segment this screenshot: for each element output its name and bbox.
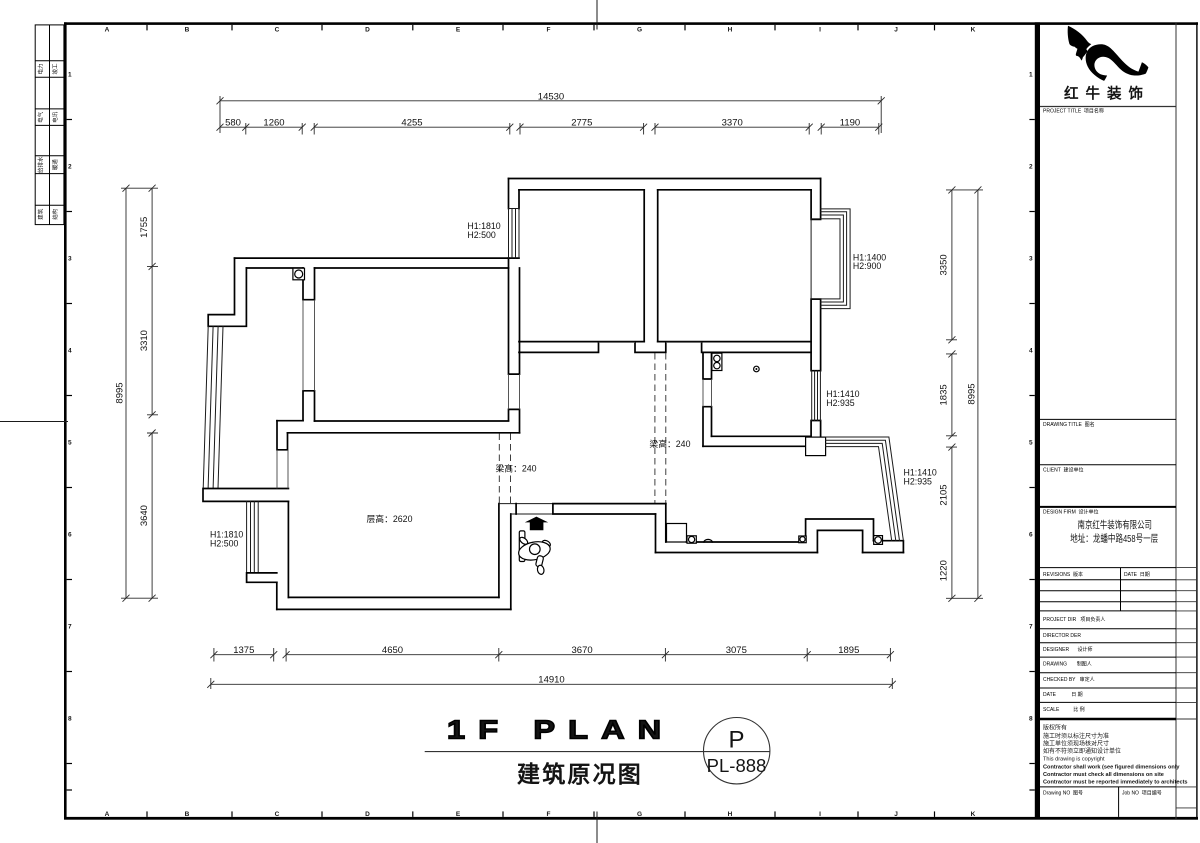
svg-text:5: 5 <box>1029 440 1033 447</box>
svg-text:F: F <box>547 811 551 818</box>
svg-text:4: 4 <box>1029 348 1033 355</box>
svg-text:3370: 3370 <box>722 117 743 128</box>
svg-text:Job NO 项目编号: Job NO 项目编号 <box>1122 790 1162 797</box>
svg-text:A: A <box>105 811 110 818</box>
svg-text:H: H <box>728 27 733 34</box>
svg-text:G: G <box>637 27 642 34</box>
svg-text:梁高：240: 梁高：240 <box>496 463 537 474</box>
svg-text:H2:500: H2:500 <box>467 230 495 240</box>
svg-text:Contractor shall work (see fig: Contractor shall work (see figured dimen… <box>1043 764 1180 770</box>
svg-text:K: K <box>971 27 976 34</box>
svg-text:Contractor must be reported im: Contractor must be reported immediately … <box>1043 780 1188 786</box>
svg-text:SCALE 比 例: SCALE 比 例 <box>1043 706 1085 713</box>
svg-text:I: I <box>819 27 821 34</box>
svg-text:8995: 8995 <box>115 382 126 403</box>
svg-text:1190: 1190 <box>840 117 860 128</box>
svg-text:1895: 1895 <box>838 645 859 656</box>
svg-text:电气: 电气 <box>37 111 45 123</box>
svg-text:C: C <box>275 27 280 34</box>
svg-text:PROJECT DIR 项目负责人: PROJECT DIR 项目负责人 <box>1043 616 1105 623</box>
svg-text:施工时须以标注尺寸为准: 施工时须以标注尺寸为准 <box>1043 732 1109 740</box>
svg-text:南京红牛装饰有限公司: 南京红牛装饰有限公司 <box>1078 518 1153 531</box>
svg-text:梁高：240: 梁高：240 <box>649 438 690 449</box>
svg-text:2: 2 <box>68 164 72 171</box>
svg-text:Drawing NO 图号: Drawing NO 图号 <box>1043 791 1083 797</box>
svg-text:H: H <box>728 811 733 818</box>
svg-text:P: P <box>728 727 744 754</box>
svg-text:CLIENT 建设单位: CLIENT 建设单位 <box>1043 466 1084 473</box>
svg-text:3: 3 <box>68 256 72 263</box>
svg-text:地址：龙蟠中路458号一层: 地址：龙蟠中路458号一层 <box>1070 532 1158 545</box>
svg-text:3: 3 <box>1029 256 1033 263</box>
svg-text:I: I <box>819 811 821 818</box>
svg-text:E: E <box>456 27 461 34</box>
svg-text:6: 6 <box>68 532 72 539</box>
svg-text:3075: 3075 <box>726 645 747 656</box>
svg-text:Contractor must check all dime: Contractor must check all dimensions on … <box>1043 772 1164 778</box>
svg-text:建筑: 建筑 <box>37 208 45 220</box>
svg-text:竣工: 竣工 <box>51 63 59 75</box>
svg-text:3640: 3640 <box>139 505 150 526</box>
svg-text:给排水: 给排水 <box>37 156 45 173</box>
svg-text:电讯: 电讯 <box>51 111 59 123</box>
svg-text:DIRECTOR DER: DIRECTOR DER <box>1043 633 1081 639</box>
svg-text:PL-888: PL-888 <box>707 755 767 776</box>
svg-text:1375: 1375 <box>233 645 254 656</box>
svg-text:8995: 8995 <box>966 383 977 404</box>
svg-text:1835: 1835 <box>939 384 950 405</box>
svg-text:F: F <box>547 27 551 34</box>
svg-text:REVISIONS 版本: REVISIONS 版本 <box>1043 571 1083 578</box>
svg-text:暖通: 暖通 <box>51 159 59 171</box>
svg-text:CHECKED BY 审定人: CHECKED BY 审定人 <box>1043 676 1095 683</box>
svg-text:层高：2620: 层高：2620 <box>367 513 413 524</box>
svg-text:8: 8 <box>1029 716 1033 723</box>
svg-text:5: 5 <box>68 440 72 447</box>
svg-text:A: A <box>105 27 110 34</box>
svg-text:C: C <box>275 811 280 818</box>
svg-text:E: E <box>456 811 461 818</box>
svg-text:H2:900: H2:900 <box>853 261 881 271</box>
svg-text:版权所有: 版权所有 <box>1043 724 1067 732</box>
svg-text:DATE 日期: DATE 日期 <box>1124 572 1150 578</box>
svg-text:580: 580 <box>225 117 241 128</box>
svg-text:2105: 2105 <box>939 484 950 505</box>
svg-text:J: J <box>894 811 898 818</box>
svg-text:14910: 14910 <box>538 675 564 686</box>
svg-text:PROJECT TITLE 项目名称: PROJECT TITLE 项目名称 <box>1043 108 1104 115</box>
svg-text:建筑原况图: 建筑原况图 <box>517 761 643 787</box>
svg-text:This drawing is copyright: This drawing is copyright <box>1043 757 1105 763</box>
svg-text:3350: 3350 <box>939 254 950 275</box>
svg-text:结构: 结构 <box>51 208 59 220</box>
svg-text:施工单位须现场核对尺寸: 施工单位须现场核对尺寸 <box>1043 740 1109 748</box>
svg-text:7: 7 <box>1029 624 1033 631</box>
svg-text:3310: 3310 <box>139 330 150 351</box>
svg-text:1220: 1220 <box>939 560 950 581</box>
svg-text:DESIGNER 设计师: DESIGNER 设计师 <box>1043 646 1092 653</box>
svg-text:K: K <box>971 811 976 818</box>
svg-text:DESIGN FIRM 设计单位: DESIGN FIRM 设计单位 <box>1043 509 1099 516</box>
svg-text:B: B <box>185 27 190 34</box>
svg-text:3670: 3670 <box>572 645 593 656</box>
svg-text:6: 6 <box>1029 532 1033 539</box>
svg-text:4650: 4650 <box>382 645 403 656</box>
svg-text:H2:935: H2:935 <box>904 476 932 486</box>
svg-text:1260: 1260 <box>263 117 284 128</box>
svg-text:2775: 2775 <box>571 117 592 128</box>
svg-text:如有不符须立即通知设计单位: 如有不符须立即通知设计单位 <box>1043 747 1121 755</box>
svg-text:1: 1 <box>1029 72 1033 79</box>
svg-text:D: D <box>365 27 370 34</box>
svg-text:D: D <box>365 811 370 818</box>
svg-text:2: 2 <box>1029 164 1033 171</box>
svg-text:1: 1 <box>68 72 72 79</box>
svg-text:J: J <box>894 27 898 34</box>
svg-text:DATE 日 期: DATE 日 期 <box>1043 692 1083 698</box>
svg-text:8: 8 <box>68 716 72 723</box>
svg-text:电力: 电力 <box>37 63 45 74</box>
svg-text:DRAWING 制图人: DRAWING 制图人 <box>1043 661 1092 668</box>
svg-text:G: G <box>637 811 642 818</box>
svg-text:红牛装饰: 红牛装饰 <box>1064 85 1150 103</box>
svg-text:B: B <box>185 811 190 818</box>
svg-text:DRAWING TITLE 图名: DRAWING TITLE 图名 <box>1043 421 1095 428</box>
svg-text:H2:935: H2:935 <box>826 398 854 408</box>
svg-text:14530: 14530 <box>538 91 564 102</box>
svg-text:4255: 4255 <box>401 117 422 128</box>
svg-text:H2:500: H2:500 <box>210 538 238 548</box>
svg-text:1F PLAN: 1F PLAN <box>447 716 674 745</box>
svg-text:7: 7 <box>68 624 72 631</box>
svg-text:1755: 1755 <box>139 217 150 238</box>
svg-text:4: 4 <box>68 348 72 355</box>
